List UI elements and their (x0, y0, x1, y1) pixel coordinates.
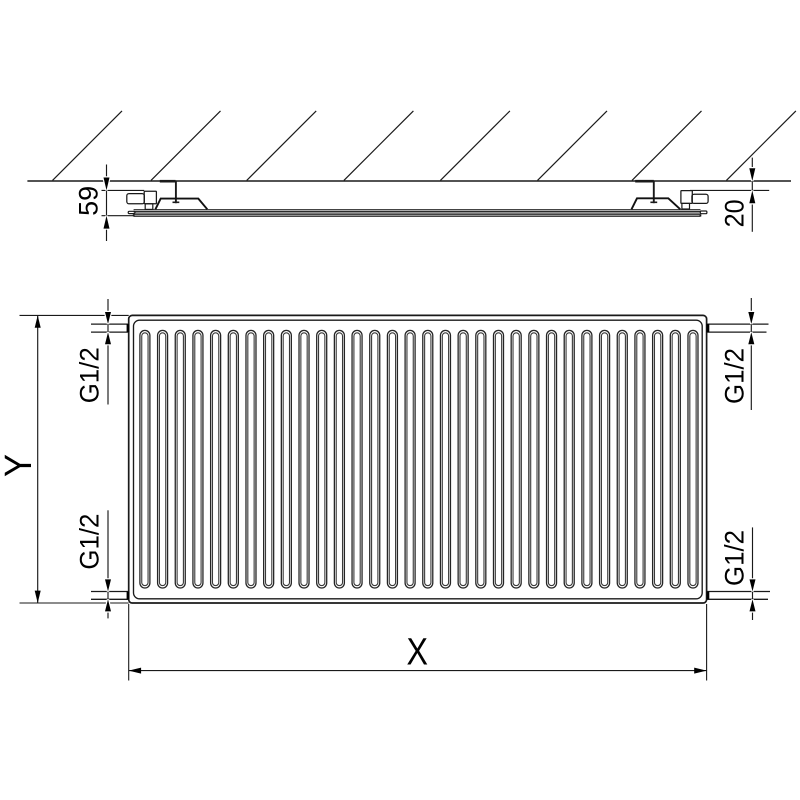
svg-text:G1/2: G1/2 (720, 348, 750, 404)
svg-text:G1/2: G1/2 (75, 347, 105, 403)
svg-text:20: 20 (720, 199, 750, 227)
svg-text:G1/2: G1/2 (720, 530, 750, 586)
svg-text:G1/2: G1/2 (75, 514, 105, 570)
svg-text:59: 59 (74, 186, 104, 216)
svg-text:X: X (407, 631, 429, 673)
svg-text:Y: Y (0, 454, 40, 477)
